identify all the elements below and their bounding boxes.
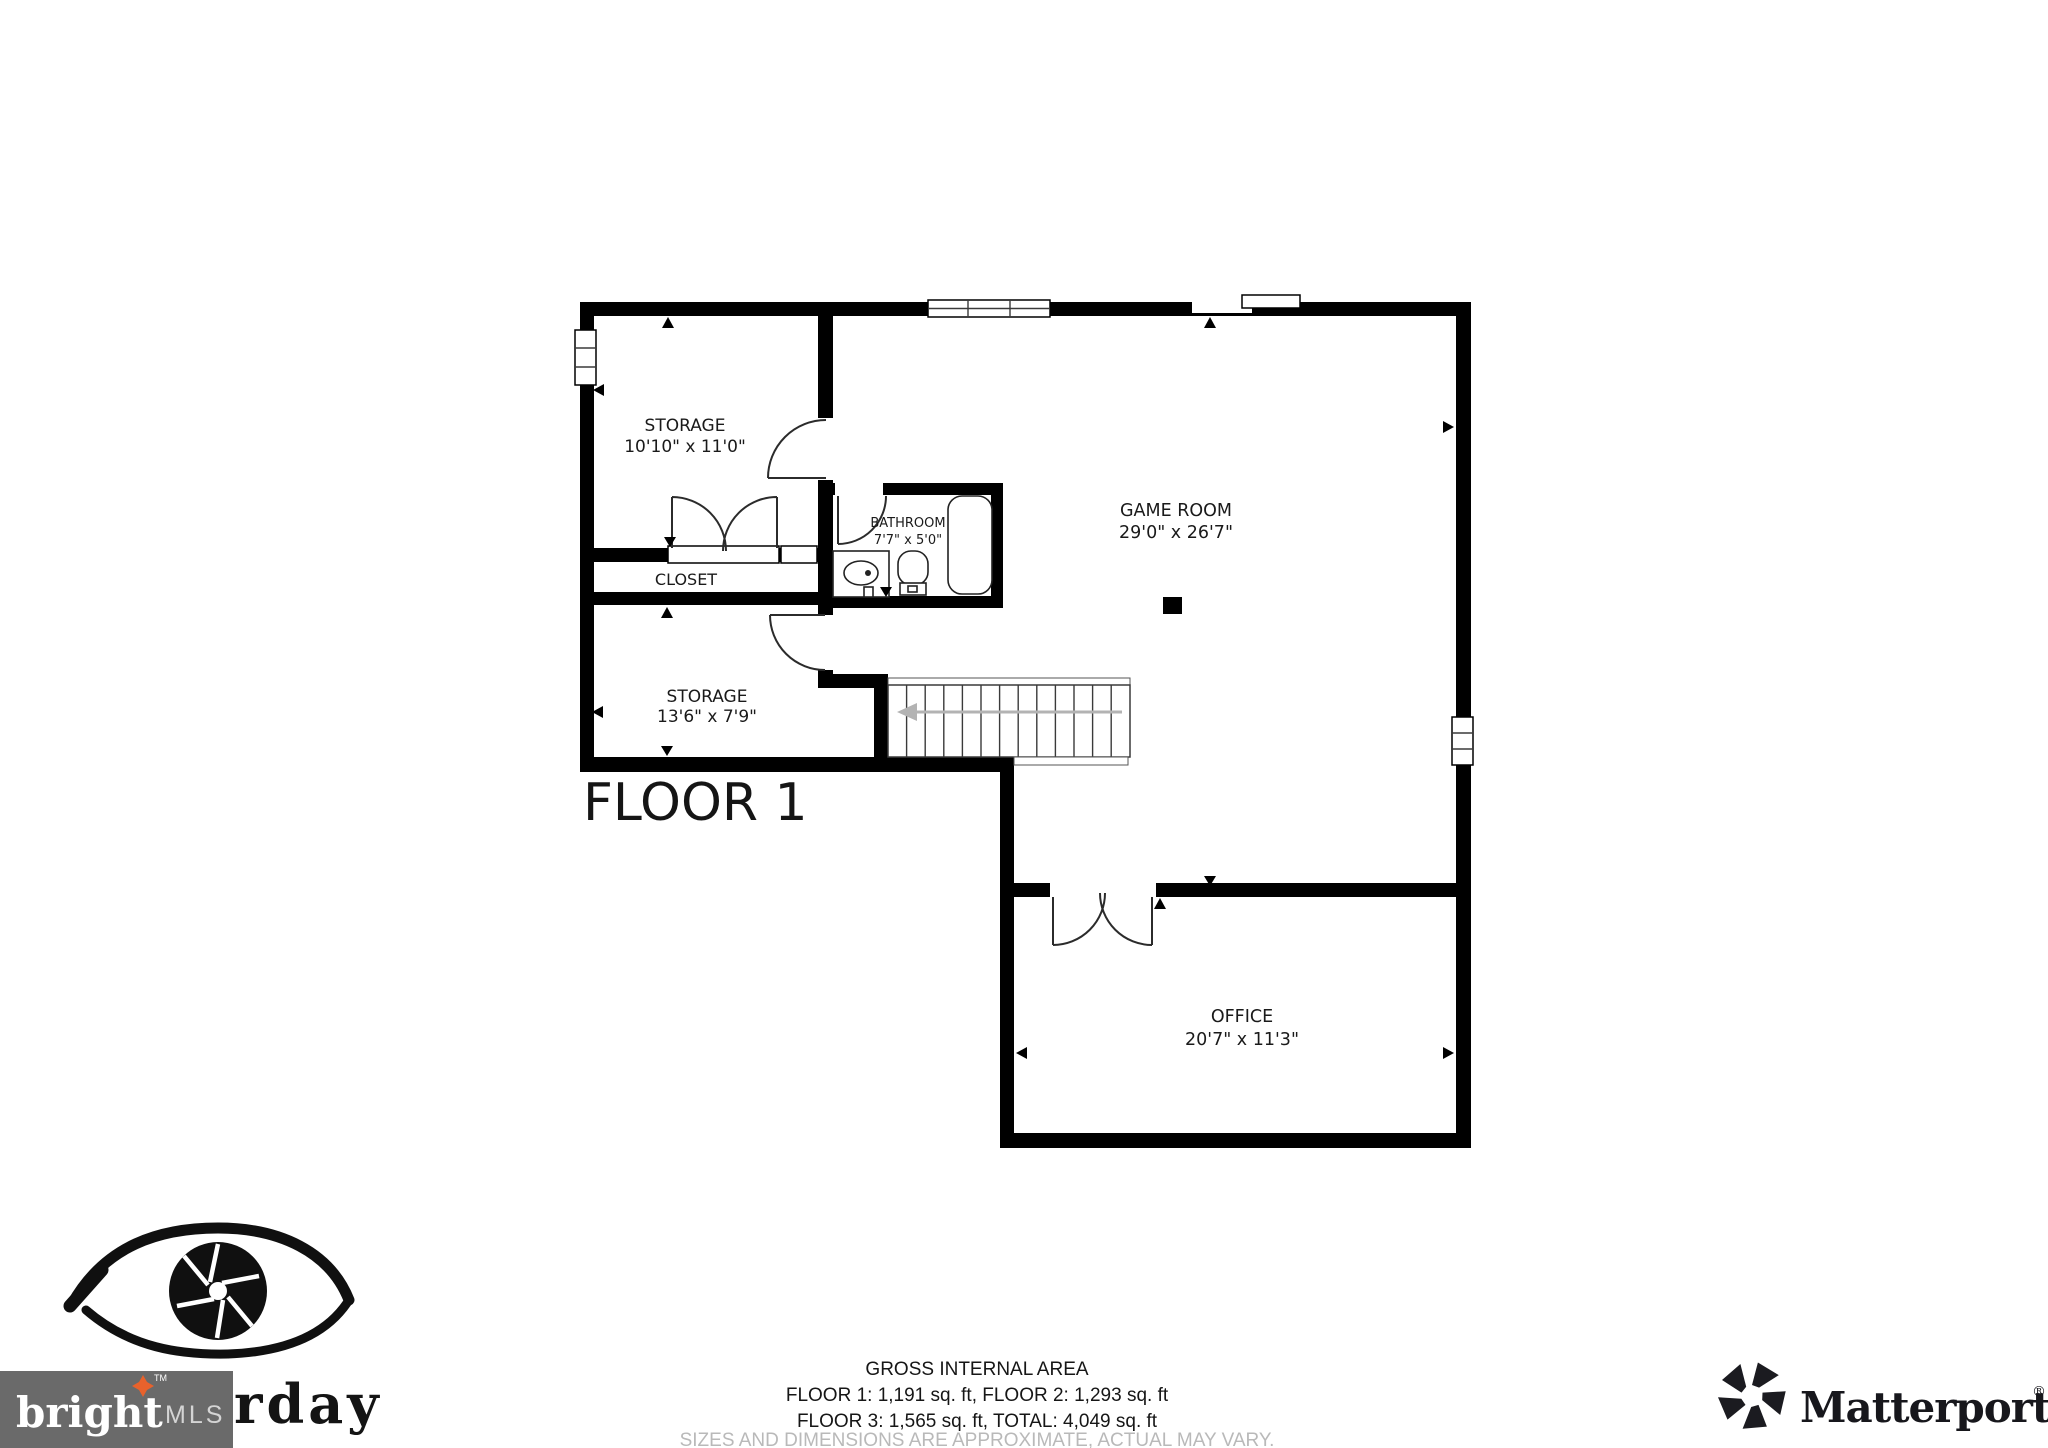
- arrow-right-icon: [1443, 421, 1454, 433]
- door-storage-upper: [768, 420, 826, 478]
- wall-bottom-left-wing: [580, 757, 1014, 772]
- stair-top-edge: [888, 678, 1130, 685]
- footer-areas-line-1: FLOOR 1: 1,191 sq. ft, FLOOR 2: 1,293 sq…: [786, 1385, 1169, 1406]
- footer-heading: GROSS INTERNAL AREA: [865, 1359, 1088, 1380]
- support-column: [1163, 597, 1182, 614]
- stair-bottom-rail: [1014, 757, 1128, 765]
- sink-basin: [844, 561, 878, 585]
- opening-storage-door: [818, 418, 833, 480]
- footer-disclaimer: SIZES AND DIMENSIONS ARE APPROXIMATE, AC…: [680, 1430, 1275, 1448]
- bright-wordmark: bright: [16, 1388, 163, 1437]
- room-name-office: OFFICE: [1211, 1007, 1273, 1027]
- watermark-text: rday: [234, 1372, 383, 1436]
- window-right-game-room: [1452, 717, 1473, 765]
- toilet-button: [908, 586, 917, 592]
- arrow-right-icon: [1443, 1047, 1454, 1059]
- bright-tm: TM: [154, 1373, 167, 1383]
- french-door-storage-left-leaf: [672, 497, 726, 551]
- arrow-left-icon: [593, 384, 604, 396]
- matterport-wordmark: Matterport: [1800, 1383, 2048, 1432]
- opening-office-door: [1050, 883, 1156, 897]
- toilet-bowl: [898, 551, 928, 585]
- floor-title: FLOOR 1: [583, 773, 808, 833]
- stair-treads-area: [888, 685, 1130, 757]
- room-name-closet: CLOSET: [655, 570, 717, 589]
- room-name-bathroom: BATHROOM: [870, 516, 945, 531]
- opening-bathroom-door: [835, 483, 883, 495]
- footer: GROSS INTERNAL AREA FLOOR 1: 1,191 sq. f…: [680, 1359, 1275, 1448]
- room-dims-storage-upper: 10'10" x 11'0": [624, 437, 746, 457]
- french-door-office-left-leaf: [1053, 893, 1105, 945]
- floor-plan-canvas: STORAGE 10'10" x 11'0" CLOSET BATHROOM 7…: [0, 0, 2048, 1448]
- room-dims-storage-lower: 13'6" x 7'9": [657, 707, 757, 727]
- room-name-game-room: GAME ROOM: [1120, 501, 1232, 521]
- aperture-center: [209, 1282, 227, 1300]
- matterport-logo: Matterport ®: [1718, 1363, 2048, 1433]
- arrow-down-icon: [661, 746, 673, 756]
- matterport-registered-mark: ®: [2032, 1384, 2046, 1400]
- arrow-up-icon: [1204, 317, 1216, 328]
- room-name-storage-lower: STORAGE: [667, 687, 748, 707]
- arrow-up-icon: [662, 317, 674, 328]
- window-top-offset: [1242, 295, 1300, 308]
- arrow-up-icon: [1154, 898, 1166, 909]
- wall-stairs-left: [874, 674, 888, 772]
- frame-closet-opening: [781, 546, 817, 563]
- bathtub: [948, 496, 992, 594]
- window-top-game-room: [928, 300, 1050, 317]
- mls-wordmark: MLS: [165, 1401, 225, 1429]
- bright-mls-logo: bright TM MLS: [0, 1371, 233, 1448]
- french-door-storage-right-leaf: [723, 497, 777, 551]
- footer-areas-line-2: FLOOR 3: 1,565 sq. ft, TOTAL: 4,049 sq. …: [797, 1411, 1158, 1432]
- french-door-office-right-leaf: [1100, 893, 1152, 945]
- floor-plan-page: { "plan": { "title": "FLOOR 1", "rooms":…: [0, 0, 2048, 1448]
- matterport-pinwheel-icon: [1718, 1363, 1786, 1429]
- room-dims-game-room: 29'0" x 26'7": [1119, 523, 1233, 543]
- wall-office-bottom: [1000, 1133, 1470, 1148]
- arrow-left-icon: [1016, 1047, 1027, 1059]
- opening-lower-storage-door: [818, 615, 833, 670]
- window-left-storage: [575, 330, 596, 385]
- sink-faucet-icon: [865, 570, 871, 576]
- room-dims-office: 20'7" x 11'3": [1185, 1030, 1299, 1050]
- door-storage-lower: [770, 615, 825, 670]
- staircase: [888, 678, 1130, 765]
- wall-closet-bottom: [580, 592, 833, 605]
- room-dims-bathroom: 7'7" x 5'0": [874, 533, 942, 548]
- arrow-up-icon: [661, 607, 673, 618]
- sink-fitting: [864, 587, 873, 597]
- room-name-storage-upper: STORAGE: [645, 416, 726, 436]
- wall-office-left: [1000, 757, 1014, 1148]
